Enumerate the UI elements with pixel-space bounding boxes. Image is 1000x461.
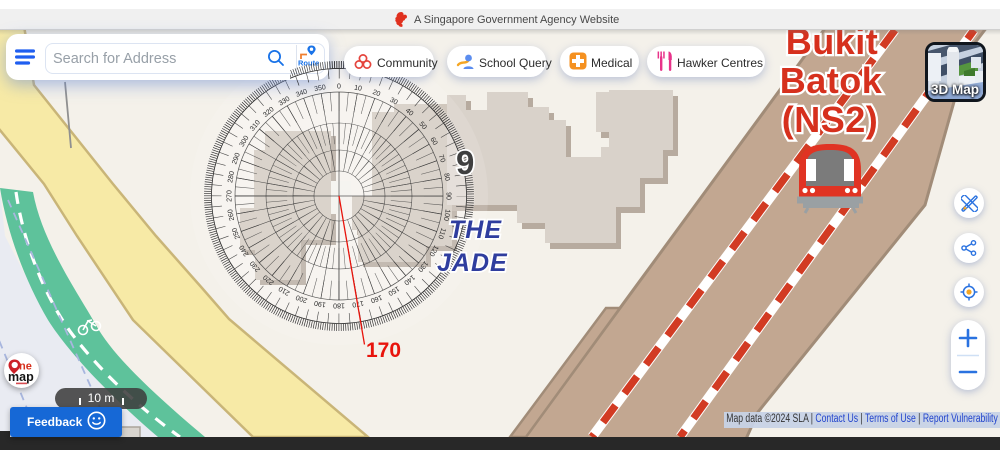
svg-text:map: map — [8, 370, 34, 384]
svg-text:80: 80 — [442, 173, 450, 182]
svg-text:270: 270 — [227, 190, 234, 202]
svg-text:THE: THE — [449, 216, 502, 244]
svg-text:(NS2): (NS2) — [782, 99, 879, 140]
svg-text:90: 90 — [445, 192, 452, 200]
svg-text:Batok: Batok — [780, 60, 883, 101]
svg-text:180: 180 — [333, 302, 345, 309]
svg-text:10: 10 — [353, 85, 362, 93]
svg-text:JADE: JADE — [437, 249, 508, 277]
svg-text:9: 9 — [456, 144, 474, 181]
svg-text:170: 170 — [366, 339, 401, 362]
